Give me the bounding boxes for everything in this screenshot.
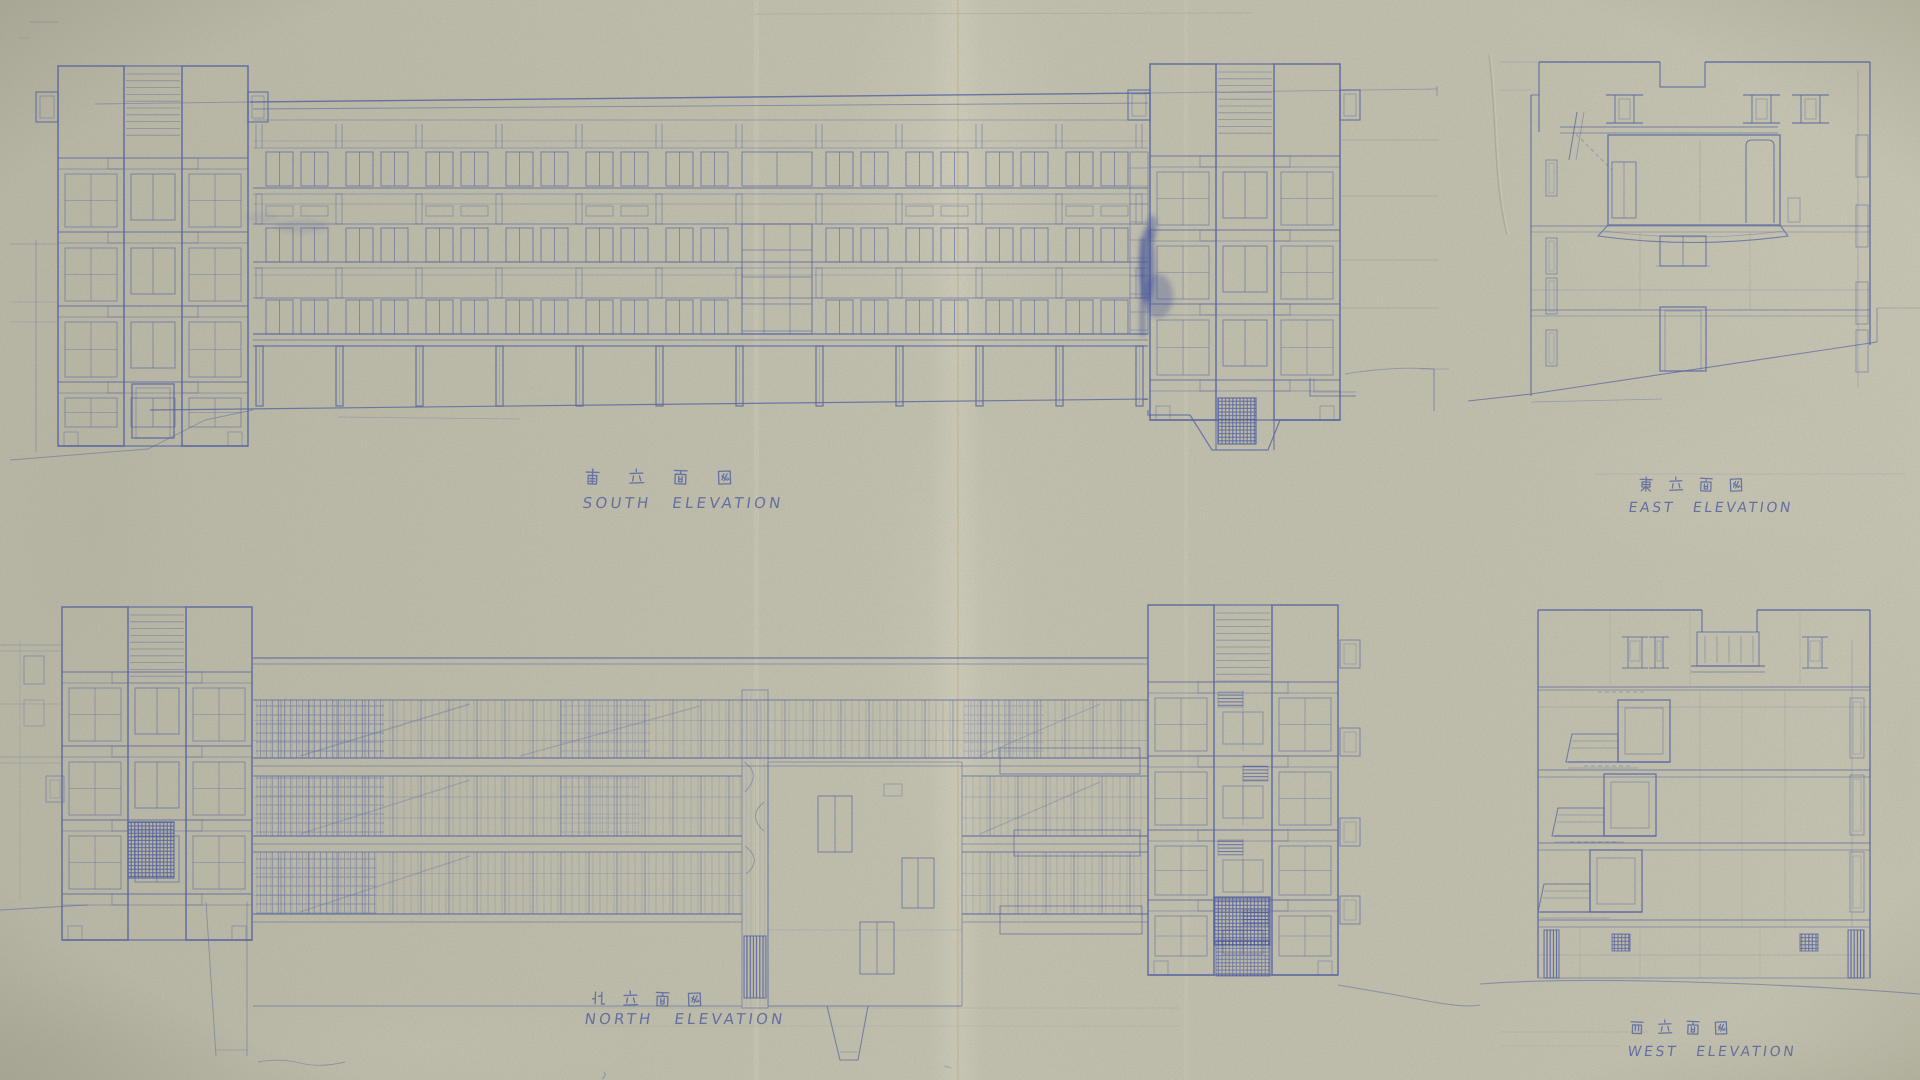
blueprint-canvas: SOUTH ELEVATION EAST ELEVATION NORTH ELE… — [0, 0, 1920, 1080]
blueprint-sheet: SOUTH ELEVATION EAST ELEVATION NORTH ELE… — [0, 0, 1920, 1080]
paper-grain — [0, 0, 1920, 1080]
